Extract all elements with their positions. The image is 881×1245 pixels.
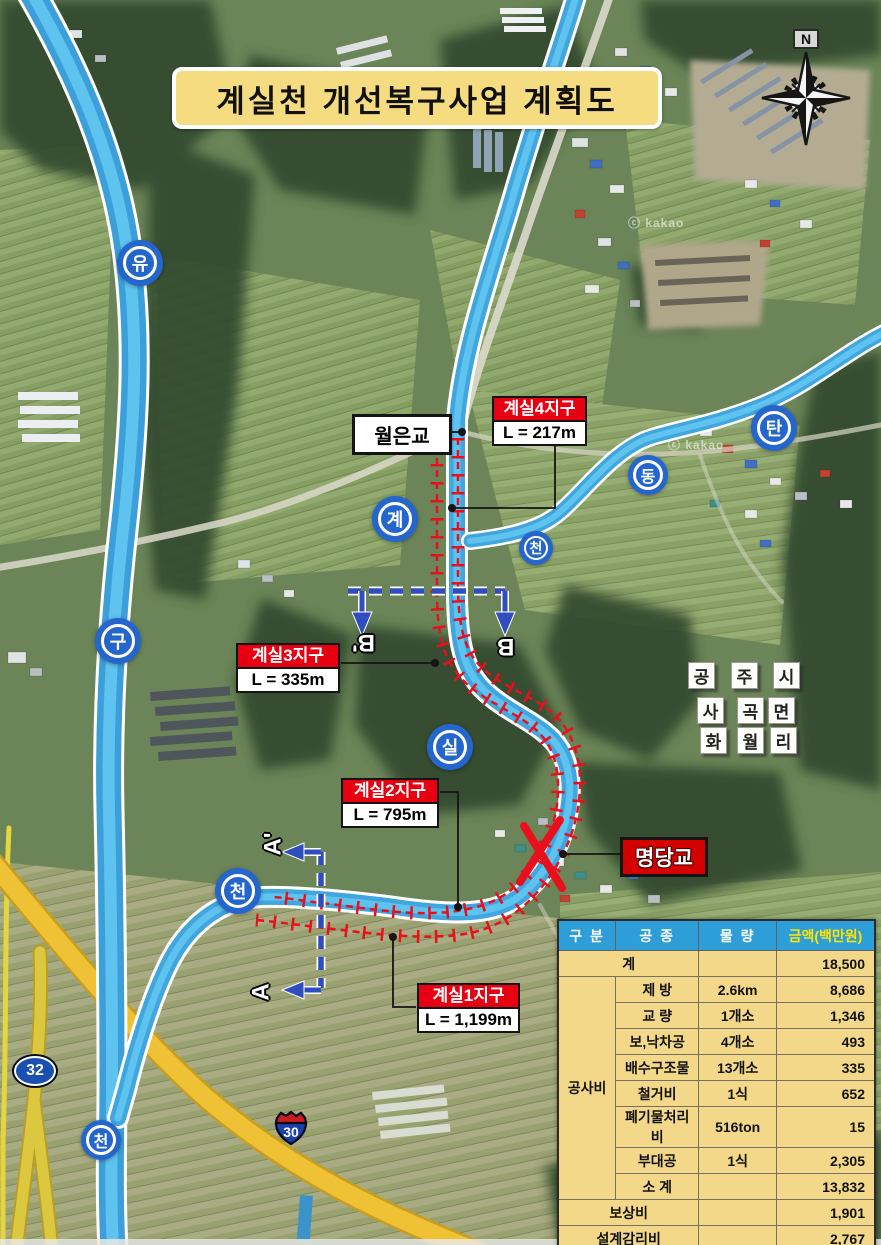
section-marker-b-prime: B' (352, 628, 375, 656)
header-mulryang: 물 량 (699, 920, 777, 951)
region-tile: 곡 (737, 697, 764, 724)
total-qty (699, 951, 777, 977)
work-amount: 13,832 (777, 1174, 876, 1200)
work-qty: 1식 (699, 1148, 777, 1174)
work-name: 배수구조물 (616, 1055, 699, 1081)
plan-map-canvas: N 계실천 개선복구사업 계획도 ⓒ kakao ⓒ kakao 유 구 천 계… (0, 0, 881, 1245)
work-qty: 4개소 (699, 1029, 777, 1055)
work-qty (699, 1174, 777, 1200)
work-amount: 1,346 (777, 1003, 876, 1029)
work-name: 교 량 (616, 1003, 699, 1029)
work-amount: 335 (777, 1055, 876, 1081)
river-badge-gu: 구 (101, 624, 135, 658)
work-qty: 13개소 (699, 1055, 777, 1081)
section-marker-a: A (248, 983, 276, 1000)
table-row: 공사비 제 방 2.6km 8,686 (558, 977, 875, 1003)
district-2-length: L = 795m (341, 802, 439, 828)
work-name: 폐기물처리비 (616, 1107, 699, 1148)
compensation-label: 보상비 (558, 1200, 699, 1226)
region-tile: 시 (773, 662, 800, 689)
work-qty: 2.6km (699, 977, 777, 1003)
map-watermark: ⓒ kakao (628, 214, 684, 231)
river-badge-dong: 동 (633, 460, 663, 490)
river-badge-cheon-mid: 천 (221, 874, 255, 908)
design-qty (699, 1226, 777, 1245)
cost-summary-table: 구 분 공 종 물 량 금액(백만원) 계 18,500 공사비 제 방 2.6… (557, 919, 876, 1245)
district-3-length: L = 335m (236, 667, 340, 693)
compass-n-label: N (801, 31, 811, 47)
section-marker-a-prime: A' (260, 832, 288, 855)
design-amount: 2,767 (777, 1226, 876, 1245)
work-amount: 2,305 (777, 1148, 876, 1174)
district-label-4: 계실4지구 L = 217m (492, 396, 587, 446)
work-amount: 652 (777, 1081, 876, 1107)
work-qty: 1식 (699, 1081, 777, 1107)
river-badge-gye: 계 (378, 502, 412, 536)
region-tile: 월 (737, 727, 764, 754)
section-marker-b: B (497, 632, 514, 660)
table-header-row: 구 분 공 종 물 량 금액(백만원) (558, 920, 875, 951)
work-amount: 15 (777, 1107, 876, 1148)
region-tile: 공 (688, 662, 715, 689)
district-2-name: 계실2지구 (341, 778, 439, 802)
design-label: 설계감리비 (558, 1226, 699, 1245)
work-name: 보,낙차공 (616, 1029, 699, 1055)
table-row-design: 설계감리비 2,767 (558, 1226, 875, 1245)
map-watermark: ⓒ kakao (668, 436, 724, 453)
route-30-number: 30 (283, 1124, 299, 1140)
district-1-name: 계실1지구 (417, 983, 520, 1007)
district-4-name: 계실4지구 (492, 396, 587, 420)
region-tile: 화 (700, 727, 727, 754)
header-gongjong: 공 종 (616, 920, 699, 951)
river-badge-cheon-left: 천 (86, 1125, 116, 1155)
bridge-label-woleungyo: 월은교 (352, 414, 452, 455)
district-4-length: L = 217m (492, 420, 587, 446)
route-shield-30: 30 (273, 1109, 309, 1152)
bridge-label-myeongdanggyo: 명당교 (620, 837, 708, 877)
work-amount: 8,686 (777, 977, 876, 1003)
table-row-total: 계 18,500 (558, 951, 875, 977)
work-name: 제 방 (616, 977, 699, 1003)
river-badge-tan: 탄 (757, 411, 791, 445)
river-badge-yu: 유 (123, 246, 157, 280)
district-3-name: 계실3지구 (236, 643, 340, 667)
work-name: 소 계 (616, 1174, 699, 1200)
river-badge-sil: 실 (433, 730, 467, 764)
plan-title: 계실천 개선복구사업 계획도 (172, 67, 662, 129)
work-name: 철거비 (616, 1081, 699, 1107)
compensation-amount: 1,901 (777, 1200, 876, 1226)
construction-label: 공사비 (558, 977, 616, 1200)
work-name: 부대공 (616, 1148, 699, 1174)
district-label-1: 계실1지구 L = 1,199m (417, 983, 520, 1033)
route-shield-32: 32 (14, 1056, 56, 1086)
region-tile: 면 (768, 697, 795, 724)
header-gubun: 구 분 (558, 920, 616, 951)
region-tile: 리 (770, 727, 797, 754)
work-qty: 1개소 (699, 1003, 777, 1029)
district-1-length: L = 1,199m (417, 1007, 520, 1033)
district-label-2: 계실2지구 L = 795m (341, 778, 439, 828)
work-amount: 493 (777, 1029, 876, 1055)
region-tile: 사 (697, 697, 724, 724)
total-label: 계 (558, 951, 699, 977)
table-row-compensation: 보상비 1,901 (558, 1200, 875, 1226)
river-badge-cheon-right: 천 (524, 536, 548, 560)
header-amount: 금액(백만원) (777, 920, 876, 951)
total-amount: 18,500 (777, 951, 876, 977)
region-tile: 주 (731, 662, 758, 689)
work-qty: 516ton (699, 1107, 777, 1148)
district-label-3: 계실3지구 L = 335m (236, 643, 340, 693)
compensation-qty (699, 1200, 777, 1226)
